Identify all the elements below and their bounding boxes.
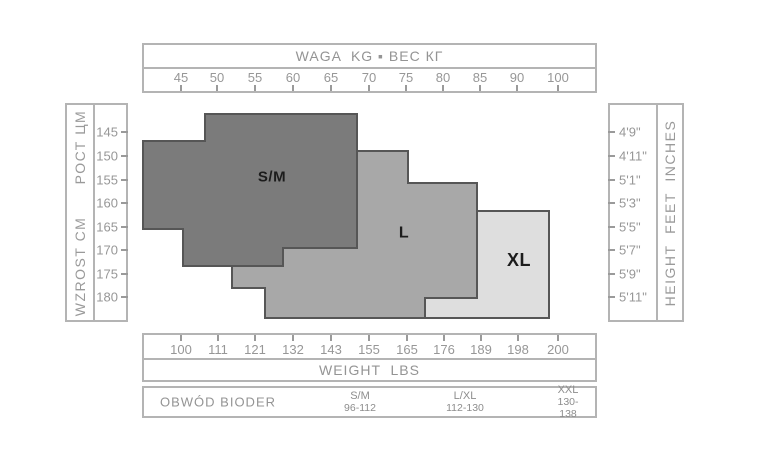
cm-tick-mark <box>121 179 128 181</box>
lbs-tick-label: 143 <box>320 342 342 357</box>
cm-tick-label: 180 <box>96 290 118 305</box>
weight-kg-axis-title: WAGA KG ▪ ВЕС КГ <box>144 45 595 69</box>
feet-tick-label: 5'1" <box>619 173 641 188</box>
height-cm-axis-label-column: WZROST CM РОСТ ЦМ <box>67 105 95 320</box>
cm-tick-label: 150 <box>96 149 118 164</box>
cm-tick-label: 175 <box>96 267 118 282</box>
hip-size-range: 130-138 <box>555 396 582 420</box>
kg-tick-mark <box>557 85 559 91</box>
feet-tick-mark <box>608 155 615 157</box>
height-feet-axis-label-column: HEIGHT FEET INCHES <box>656 105 682 320</box>
lbs-tick-label: 155 <box>358 342 380 357</box>
cm-tick-mark <box>121 296 128 298</box>
hip-size-table-label: OBWÓD BIODER <box>160 395 276 410</box>
lbs-tick-mark <box>180 335 182 341</box>
cm-tick-mark <box>121 226 128 228</box>
size-region-label-xl: XL <box>507 250 531 270</box>
kg-tick-label: 75 <box>399 70 413 85</box>
lbs-tick-label: 132 <box>282 342 304 357</box>
kg-tick-label: 80 <box>436 70 450 85</box>
hip-size-column: XXL130-138 <box>555 384 582 420</box>
lbs-tick-mark <box>517 335 519 341</box>
lbs-tick-label: 121 <box>244 342 266 357</box>
feet-tick-label: 5'11" <box>619 290 647 305</box>
kg-tick-mark <box>180 85 182 91</box>
kg-tick-label: 60 <box>286 70 300 85</box>
kg-tick-mark <box>405 85 407 91</box>
weight-kg-tick-row: 45505560657075808590100 <box>144 69 595 91</box>
height-feet-axis-box: 4'9"4'11"5'1"5'3"5'5"5'7"5'9"5'11" HEIGH… <box>608 103 684 322</box>
lbs-tick-mark <box>443 335 445 341</box>
kg-tick-mark <box>479 85 481 91</box>
hip-size-name: S/M <box>344 390 376 402</box>
kg-tick-mark <box>330 85 332 91</box>
hip-size-name: XXL <box>555 384 582 396</box>
feet-tick-mark <box>608 296 615 298</box>
kg-tick-label: 45 <box>174 70 188 85</box>
weight-lbs-axis-box: 100111121132143155165176189198200 WEIGHT… <box>142 333 597 382</box>
size-chart-page: WAGA KG ▪ ВЕС КГ 45505560657075808590100… <box>0 0 768 456</box>
lbs-tick-mark <box>368 335 370 341</box>
feet-tick-mark <box>608 226 615 228</box>
feet-tick-label: 5'3" <box>619 196 641 211</box>
height-feet-axis-title: HEIGHT FEET INCHES <box>658 105 682 320</box>
kg-tick-label: 85 <box>473 70 487 85</box>
cm-tick-label: 165 <box>96 220 118 235</box>
cm-tick-mark <box>121 131 128 133</box>
feet-tick-mark <box>608 179 615 181</box>
cm-tick-label: 145 <box>96 125 118 140</box>
kg-tick-label: 55 <box>248 70 262 85</box>
lbs-tick-label: 198 <box>507 342 529 357</box>
size-region-label-l: L <box>399 225 409 242</box>
lbs-tick-mark <box>292 335 294 341</box>
feet-tick-label: 4'9" <box>619 125 641 140</box>
feet-tick-mark <box>608 249 615 251</box>
lbs-tick-label: 176 <box>433 342 455 357</box>
feet-tick-mark <box>608 202 615 204</box>
cm-tick-mark <box>121 155 128 157</box>
weight-kg-axis-box: WAGA KG ▪ ВЕС КГ 45505560657075808590100 <box>142 43 597 93</box>
size-region-xl <box>425 211 549 318</box>
lbs-tick-mark <box>406 335 408 341</box>
size-region-l <box>232 151 477 318</box>
height-cm-axis-box: WZROST CM РОСТ ЦМ 1451501551601651701751… <box>65 103 128 322</box>
kg-tick-mark <box>216 85 218 91</box>
feet-tick-mark <box>608 131 615 133</box>
height-feet-tick-column: 4'9"4'11"5'1"5'3"5'5"5'7"5'9"5'11" <box>610 105 656 320</box>
lbs-tick-label: 200 <box>547 342 569 357</box>
hip-size-column: S/M96-112 <box>344 390 376 414</box>
height-cm-tick-column: 145150155160165170175180 <box>95 105 126 320</box>
kg-tick-label: 50 <box>210 70 224 85</box>
hip-size-table: OBWÓD BIODER S/M96-112L/XL112-130XXL130-… <box>142 386 597 418</box>
hip-size-column: L/XL112-130 <box>446 390 484 414</box>
height-cm-axis-title: WZROST CM РОСТ ЦМ <box>68 105 92 320</box>
kg-tick-label: 70 <box>362 70 376 85</box>
size-region-sm <box>143 114 357 266</box>
lbs-tick-label: 111 <box>208 342 228 357</box>
feet-tick-mark <box>608 273 615 275</box>
cm-tick-mark <box>121 202 128 204</box>
lbs-tick-label: 165 <box>396 342 418 357</box>
cm-tick-label: 170 <box>96 243 118 258</box>
kg-tick-mark <box>368 85 370 91</box>
lbs-tick-label: 100 <box>170 342 192 357</box>
cm-tick-label: 160 <box>96 196 118 211</box>
weight-lbs-tick-row: 100111121132143155165176189198200 <box>144 335 595 360</box>
feet-tick-label: 5'7" <box>619 243 641 258</box>
kg-tick-label: 90 <box>510 70 524 85</box>
hip-size-range: 96-112 <box>344 402 376 414</box>
kg-tick-mark <box>292 85 294 91</box>
kg-tick-label: 100 <box>547 70 569 85</box>
lbs-tick-label: 189 <box>470 342 492 357</box>
cm-tick-mark <box>121 249 128 251</box>
kg-tick-label: 65 <box>324 70 338 85</box>
lbs-tick-mark <box>330 335 332 341</box>
kg-tick-mark <box>442 85 444 91</box>
feet-tick-label: 5'9" <box>619 267 641 282</box>
feet-tick-label: 5'5" <box>619 220 641 235</box>
feet-tick-label: 4'11" <box>619 149 647 164</box>
cm-tick-label: 155 <box>96 173 118 188</box>
kg-tick-mark <box>254 85 256 91</box>
lbs-tick-mark <box>557 335 559 341</box>
hip-size-range: 112-130 <box>446 402 484 414</box>
cm-tick-mark <box>121 273 128 275</box>
kg-tick-mark <box>516 85 518 91</box>
weight-lbs-axis-title: WEIGHT LBS <box>144 360 595 380</box>
lbs-tick-mark <box>254 335 256 341</box>
hip-size-name: L/XL <box>446 390 484 402</box>
size-region-label-sm: S/M <box>258 169 286 186</box>
lbs-tick-mark <box>480 335 482 341</box>
lbs-tick-mark <box>217 335 219 341</box>
